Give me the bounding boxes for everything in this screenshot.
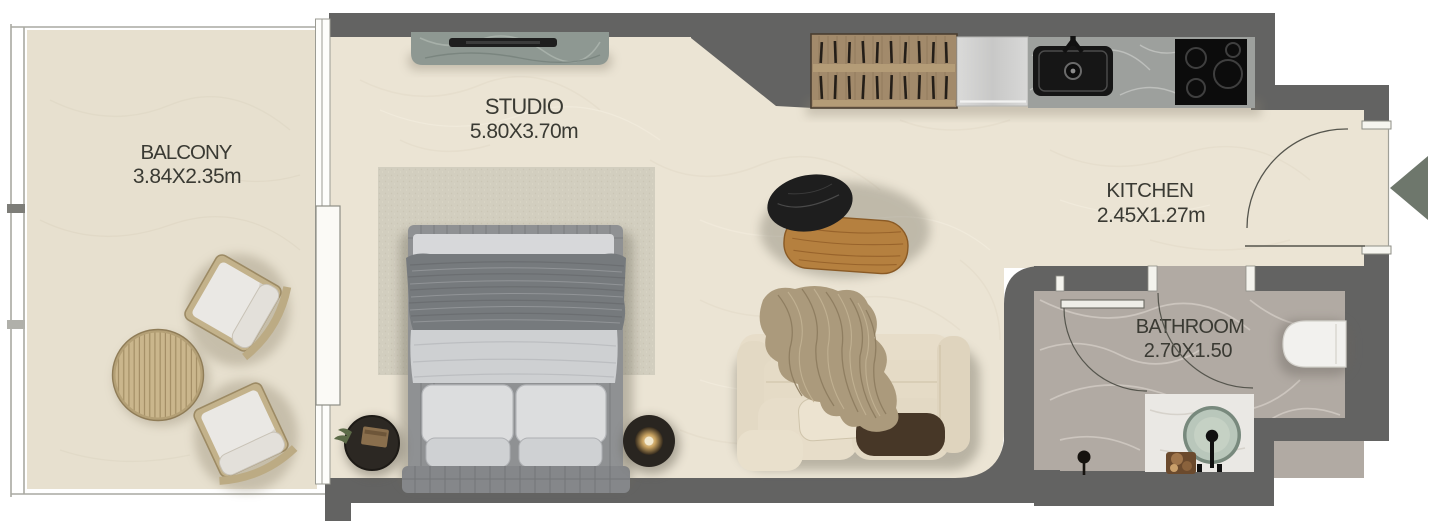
svg-text:5.80X3.70m: 5.80X3.70m (470, 120, 578, 143)
svg-text:3.84X2.35m: 3.84X2.35m (133, 165, 241, 188)
svg-text:BATHROOM: BATHROOM (1136, 316, 1245, 338)
svg-text:BALCONY: BALCONY (141, 141, 233, 164)
svg-text:KITCHEN: KITCHEN (1106, 179, 1193, 202)
svg-text:STUDIO: STUDIO (485, 94, 564, 119)
svg-text:2.70X1.50: 2.70X1.50 (1144, 340, 1233, 362)
svg-text:2.45X1.27m: 2.45X1.27m (1097, 204, 1205, 227)
